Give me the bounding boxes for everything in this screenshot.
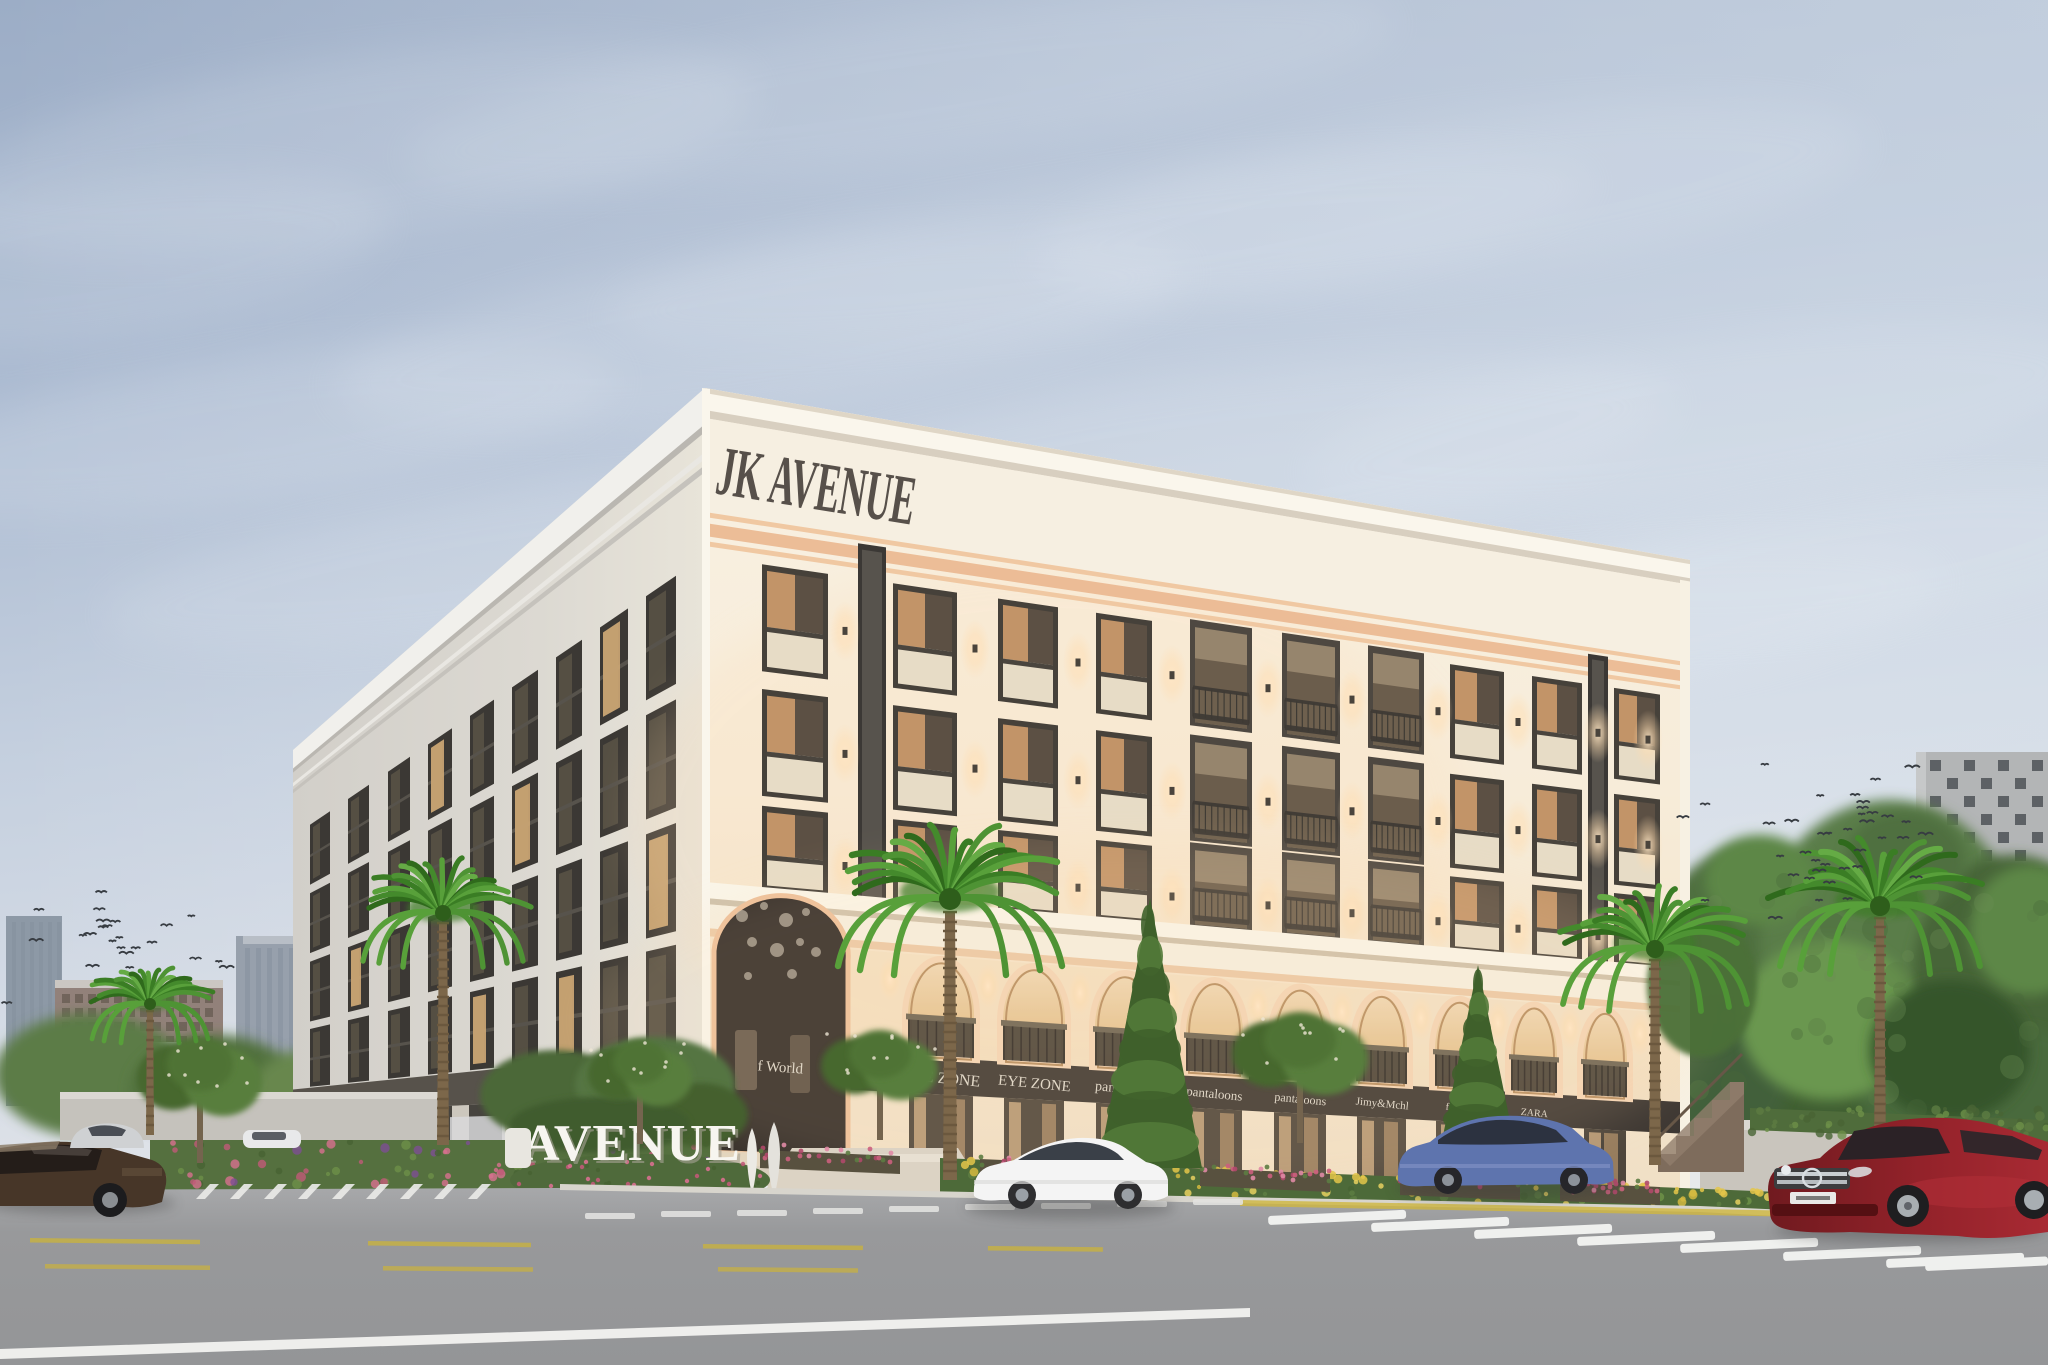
svg-text:AVENUE: AVENUE — [522, 1115, 741, 1172]
